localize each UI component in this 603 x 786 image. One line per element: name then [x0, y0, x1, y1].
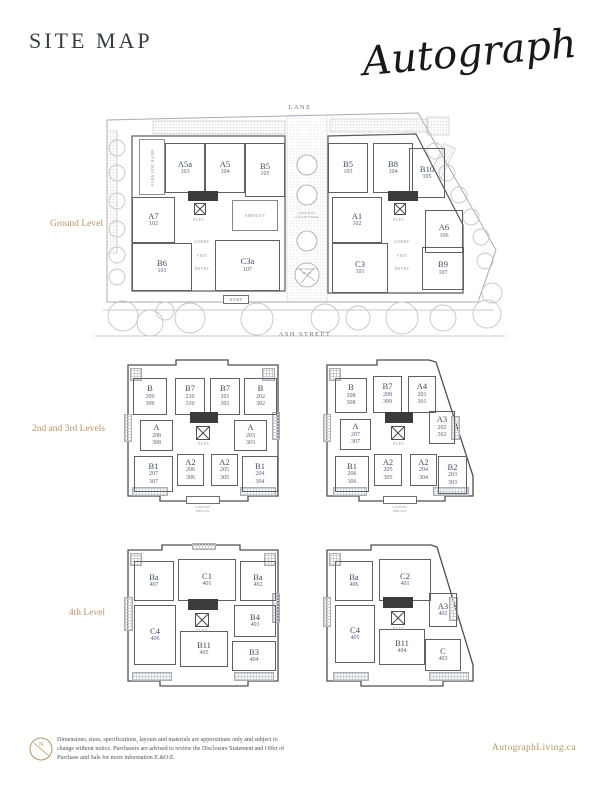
elevator-icon: [391, 611, 405, 625]
unit-b-202-302: B202 302: [244, 378, 277, 415]
balcony-hatch: [333, 672, 369, 681]
unit-c4-406: C4406: [134, 605, 176, 665]
unit-b11-404: B11404: [379, 629, 425, 665]
elev-label: ELEV: [385, 441, 413, 446]
level-4-west-plan: Ba407 C1401 Ba402 B4403 C4406 B11405 B34…: [122, 541, 284, 699]
amenity-label: AMENITY: [245, 213, 266, 218]
unit-ba-407: Ba407: [134, 561, 174, 601]
unit-a2-206-306: A2206 306: [177, 454, 204, 486]
unit-b2-203-303: B2203 303: [438, 456, 467, 494]
balcony-hatch: [272, 412, 280, 440]
unit-c-403: C403: [425, 639, 461, 671]
unit-a2-204-304: A2204 304: [410, 454, 437, 486]
site-map-page: SITE MAP Autograph Ground Level: [0, 0, 603, 786]
unit-b3-404: B3404: [232, 641, 276, 671]
unit-a7-102: A7102: [132, 197, 175, 243]
balcony-hatch: [323, 414, 331, 442]
unit-ba-402: Ba402: [240, 561, 276, 601]
childrens-play-label: CHILDREN'S PLAY: [287, 267, 327, 276]
stair-core: [383, 597, 413, 608]
elev-label: ELEV: [385, 626, 413, 631]
unit-a5a-103: A5a103: [165, 143, 205, 193]
canopy: [186, 496, 220, 504]
levels-2-3-east-plan: B208 308 B7209 309 A4201 301 A207 307 A3…: [321, 356, 479, 514]
unit-c3a-107: C3a107: [215, 240, 280, 291]
unit-b1-206-306: B1206 306: [335, 456, 369, 492]
balcony-hatch: [124, 414, 132, 442]
amenity-room: AMENITY: [232, 200, 278, 231]
unit-b7-210-310: B7210 310: [175, 378, 205, 415]
unit-b7-209-309: B7209 309: [373, 376, 402, 413]
lobby-label: LOBBY: [189, 239, 215, 244]
unit-a1-102: A1102: [332, 197, 382, 243]
ground-level-label: Ground Level: [8, 219, 103, 229]
ground-level-plan: LANE ASH STREET CENTRAL COURTYARD CHILDR…: [95, 103, 505, 348]
unit-a-207-307: A207 307: [340, 419, 371, 450]
balcony-hatch: [429, 672, 469, 681]
levels-2-3-label: 2nd and 3rd Levels: [8, 424, 105, 434]
lane-label: LANE: [278, 104, 322, 111]
elev-label: ELEV: [384, 217, 414, 222]
unit-c4-405: C4405: [335, 605, 375, 663]
unit-a3-402: A3402: [429, 593, 457, 627]
elev-label: ELEV: [190, 441, 218, 446]
balcony-hatch: [192, 543, 216, 550]
unit-b-208-308: B208 308: [335, 378, 367, 413]
unit-a2-205-305: A2205 305: [374, 454, 402, 486]
elev-label: ELEV: [184, 217, 214, 222]
website-link[interactable]: AutographLiving.ca: [492, 743, 576, 753]
stair-core: [385, 412, 413, 423]
canopy: [383, 496, 417, 504]
central-courtyard-label: CENTRAL COURTYARD: [287, 211, 327, 220]
unit-b1-204-304: B1204 304: [242, 456, 278, 492]
elev-label: ELEV: [188, 628, 216, 633]
entry-label: ENTRY: [190, 266, 214, 271]
ramp-label: RAMP: [223, 295, 249, 304]
svg-text:N: N: [39, 742, 44, 748]
levels-2-3-west-plan: B209 309 B7210 310 B7201 301 B202 302 A2…: [122, 356, 284, 514]
elevator-icon: [394, 203, 406, 215]
unit-b8-104: B8104: [373, 143, 413, 193]
balcony-hatch: [124, 597, 133, 631]
unit-b5-103: B5103: [328, 143, 368, 193]
stair-core: [388, 191, 418, 201]
unit-b5-105: B5105: [245, 143, 285, 197]
vest-label: VEST: [191, 253, 213, 258]
elevator-icon: [391, 426, 405, 440]
lobby-label: LOBBY: [389, 239, 415, 244]
north-compass-icon: N: [28, 736, 54, 762]
vest-label: VEST: [391, 253, 413, 258]
unit-c1-401: C1401: [178, 559, 236, 601]
disclaimer-text: Dimensions, sizes, specifications, layou…: [57, 736, 295, 763]
entry-label: ENTRY: [390, 266, 414, 271]
unit-a-203-303: A203 303: [234, 420, 267, 451]
unit-c3-101: C3101: [332, 243, 388, 293]
balcony-hatch: [132, 672, 172, 681]
unit-ba-406: Ba406: [335, 561, 373, 601]
unit-a3-202-302: A3202 302: [429, 411, 455, 444]
stair-core: [188, 191, 218, 201]
unit-b7-201-301: B7201 301: [210, 378, 240, 415]
stair-core: [190, 412, 218, 423]
balcony-hatch: [323, 597, 331, 627]
unit-a5-104: A5104: [205, 143, 245, 193]
unit-b4-403: B4403: [234, 605, 276, 637]
unit-b1-207-307: B1207 307: [134, 456, 173, 492]
unit-b-209-309: B209 309: [133, 378, 167, 415]
elevator-icon: [194, 203, 206, 215]
level-4-east-plan: Ba406 C2401 A3402 C4405 B11404 C403 ELEV: [321, 541, 479, 699]
canopy-label: CANOPY BELOW: [379, 505, 421, 514]
unit-c2-401: C2401: [379, 559, 431, 601]
elevator-icon: [195, 613, 209, 627]
canopy-label: CANOPY BELOW: [182, 505, 224, 514]
brand-signature: Autograph: [360, 21, 578, 86]
page-title: SITE MAP: [29, 28, 153, 54]
elevator-icon: [196, 426, 210, 440]
parkade-ramp-label: PARKADE RAMP: [150, 149, 155, 186]
stair-core: [188, 599, 218, 610]
unit-a4-201-301: A4201 301: [408, 376, 436, 413]
unit-a-208-308: A208 308: [140, 420, 173, 451]
unit-b11-405: B11405: [180, 631, 228, 667]
level-4-label: 4th Level: [8, 608, 105, 618]
unit-b6-101: B6101: [132, 243, 192, 291]
unit-a2-205-305: A2205 305: [211, 454, 238, 486]
parkade-ramp: PARKADE RAMP: [139, 139, 165, 195]
balcony-hatch: [234, 672, 274, 681]
unit-b9-107: B9107: [422, 247, 464, 290]
ash-street-label: ASH STREET: [255, 331, 355, 338]
